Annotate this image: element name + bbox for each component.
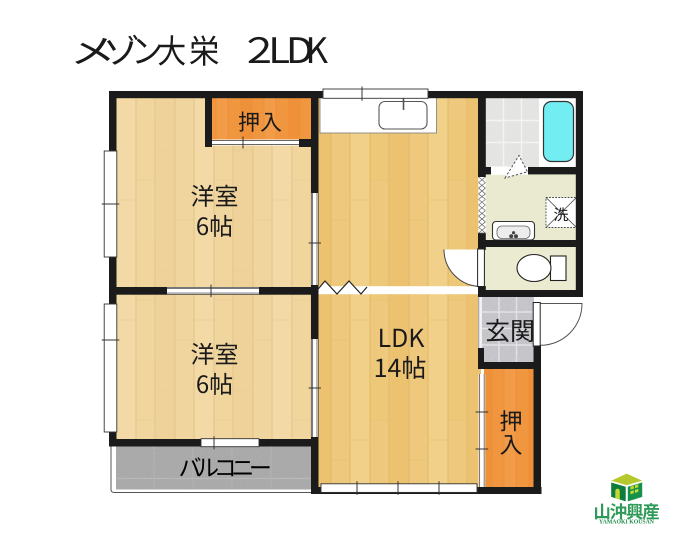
svg-text:YAMAOKI KOUSAN: YAMAOKI KOUSAN [599, 519, 654, 526]
